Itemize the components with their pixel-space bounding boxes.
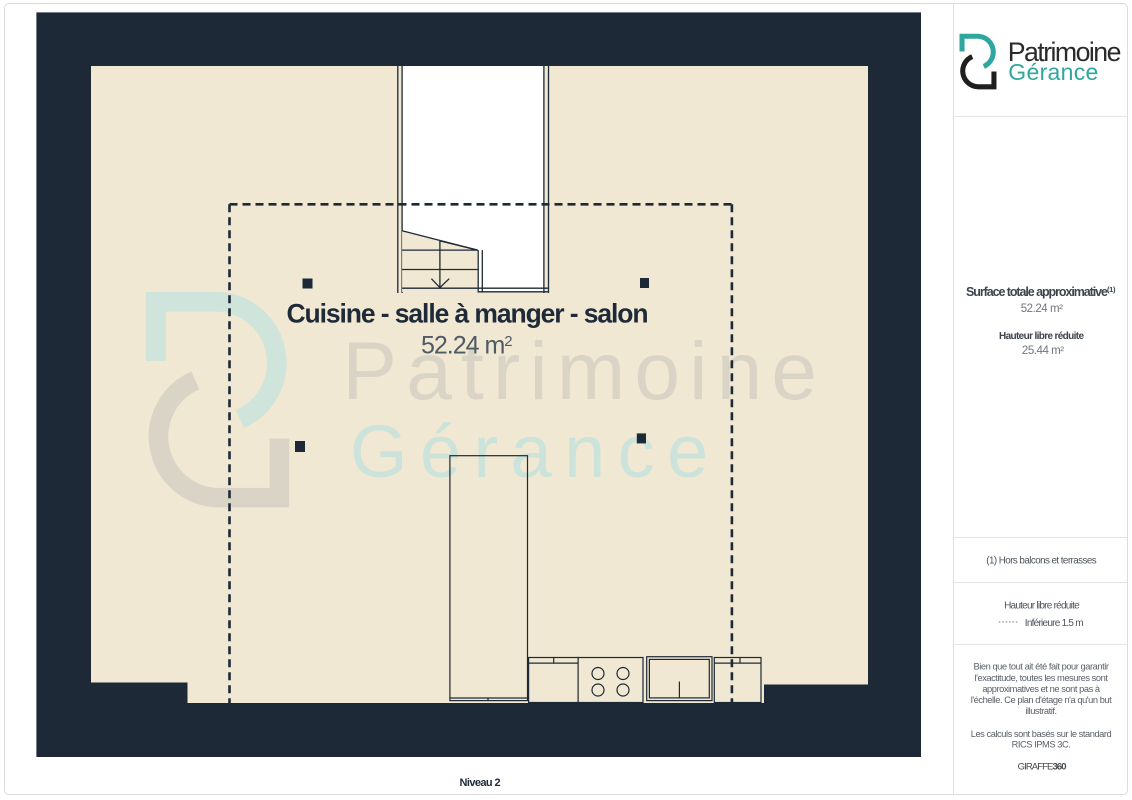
svg-text:Bien que tout ait été fait pou: Bien que tout ait été fait pour garantir <box>974 662 1109 672</box>
svg-text:Cuisine - salle à manger - sal: Cuisine - salle à manger - salon <box>287 299 648 329</box>
svg-text:approximatives et ne sont pas: approximatives et ne sont pas à <box>982 684 1101 694</box>
svg-text:52.24 m2: 52.24 m2 <box>421 332 512 360</box>
svg-text:Niveau 2: Niveau 2 <box>459 777 500 789</box>
svg-text:Inférieure 1.5 m: Inférieure 1.5 m <box>1025 618 1083 629</box>
svg-text:Gérance: Gérance <box>1008 59 1098 85</box>
svg-text:Patrimoine: Patrimoine <box>342 326 826 417</box>
svg-text:Gérance: Gérance <box>350 410 721 493</box>
svg-text:Surface totale approximative(1: Surface totale approximative(1) <box>966 285 1116 299</box>
svg-text:RICS IPMS 3C.: RICS IPMS 3C. <box>1012 740 1071 750</box>
svg-text:Hauteur libre réduite: Hauteur libre réduite <box>1004 601 1080 612</box>
svg-text:illustratif.: illustratif. <box>1025 706 1056 716</box>
svg-text:52.24 m²: 52.24 m² <box>1021 303 1063 315</box>
svg-text:Hauteur libre réduite: Hauteur libre réduite <box>999 331 1084 342</box>
svg-text:25.44 m²: 25.44 m² <box>1022 345 1064 357</box>
svg-text:l'exactitude, toutes les mesur: l'exactitude, toutes les mesures sont <box>975 673 1109 683</box>
svg-text:(1) Hors balcons et terrasses: (1) Hors balcons et terrasses <box>986 556 1096 567</box>
svg-text:Les calculs sont basés sur le: Les calculs sont basés sur le standard <box>971 729 1112 739</box>
svg-text:GIRAFFE360: GIRAFFE360 <box>1018 762 1067 773</box>
svg-text:l'échelle. Ce plan d'étage n'a: l'échelle. Ce plan d'étage n'a qu'un but <box>971 695 1112 705</box>
